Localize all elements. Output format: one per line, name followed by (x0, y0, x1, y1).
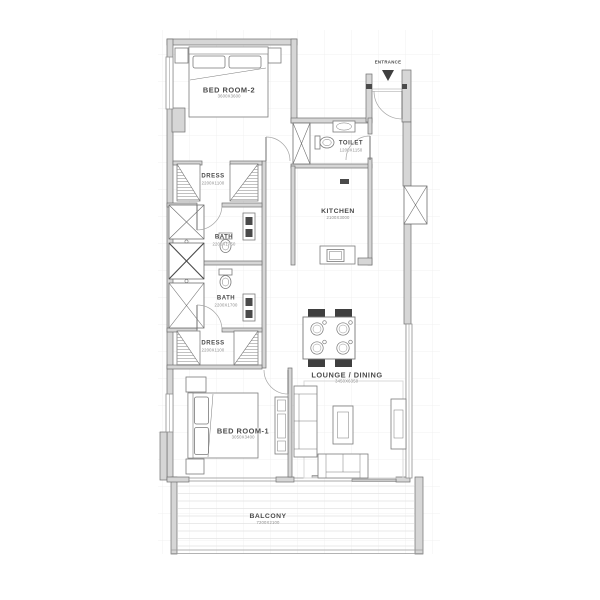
dining-set (303, 309, 355, 367)
bedroom2-furniture (175, 47, 281, 117)
floor-plan-drawing (0, 0, 600, 600)
floor-plan-canvas: BED ROOM-2 3600X3600 TOILET 1200X1150 KI… (0, 0, 600, 600)
